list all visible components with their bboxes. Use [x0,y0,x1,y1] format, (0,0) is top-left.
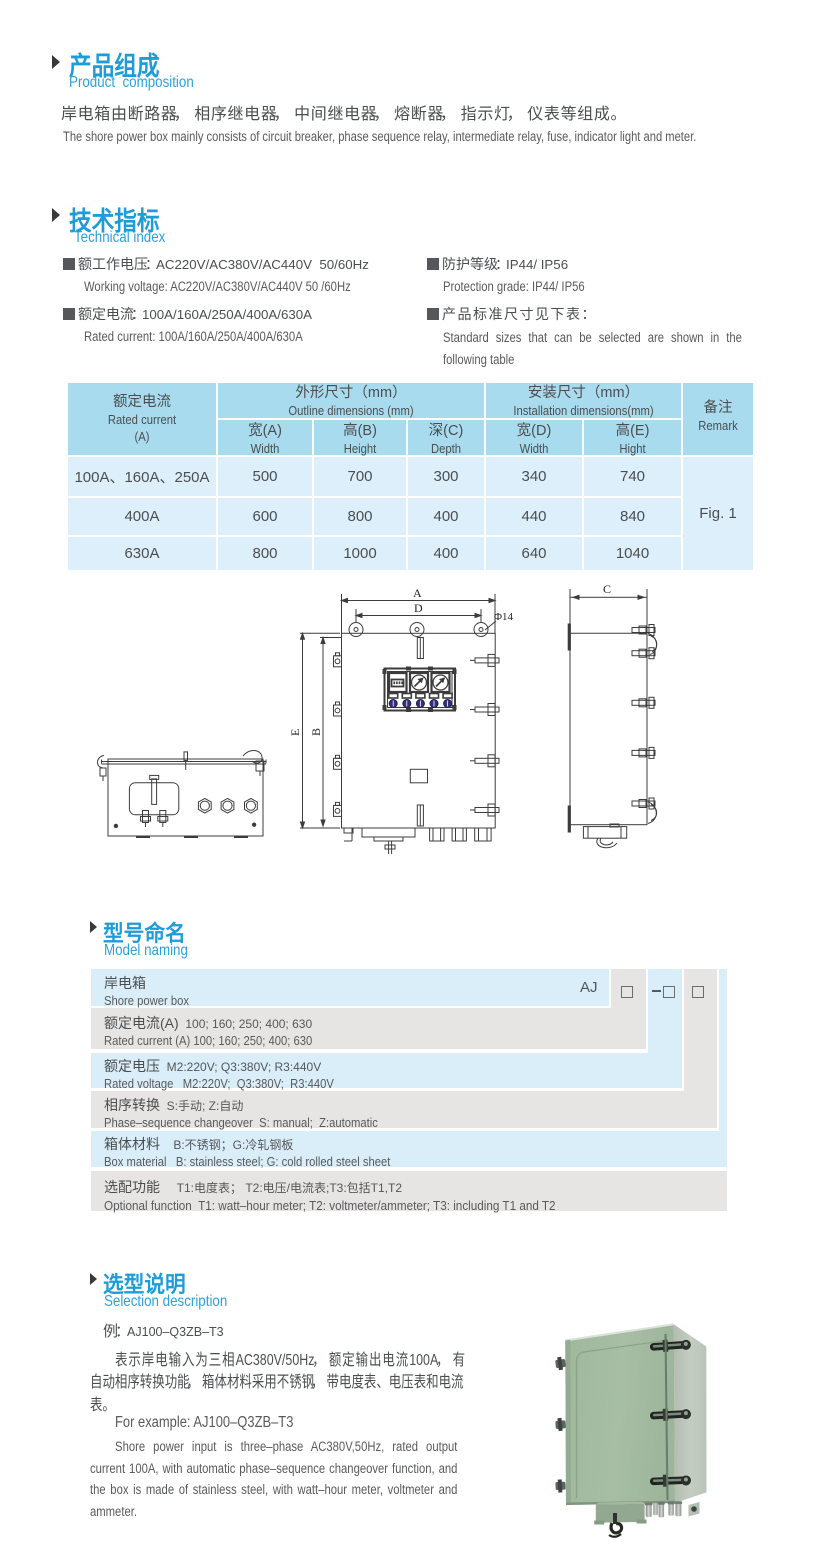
svg-text:B: B [309,728,323,736]
svg-text:A: A [413,586,422,600]
svg-text:D: D [414,601,423,615]
svg-text:Φ14: Φ14 [494,611,514,623]
svg-text:E: E [288,729,302,736]
svg-text:C: C [603,582,611,596]
